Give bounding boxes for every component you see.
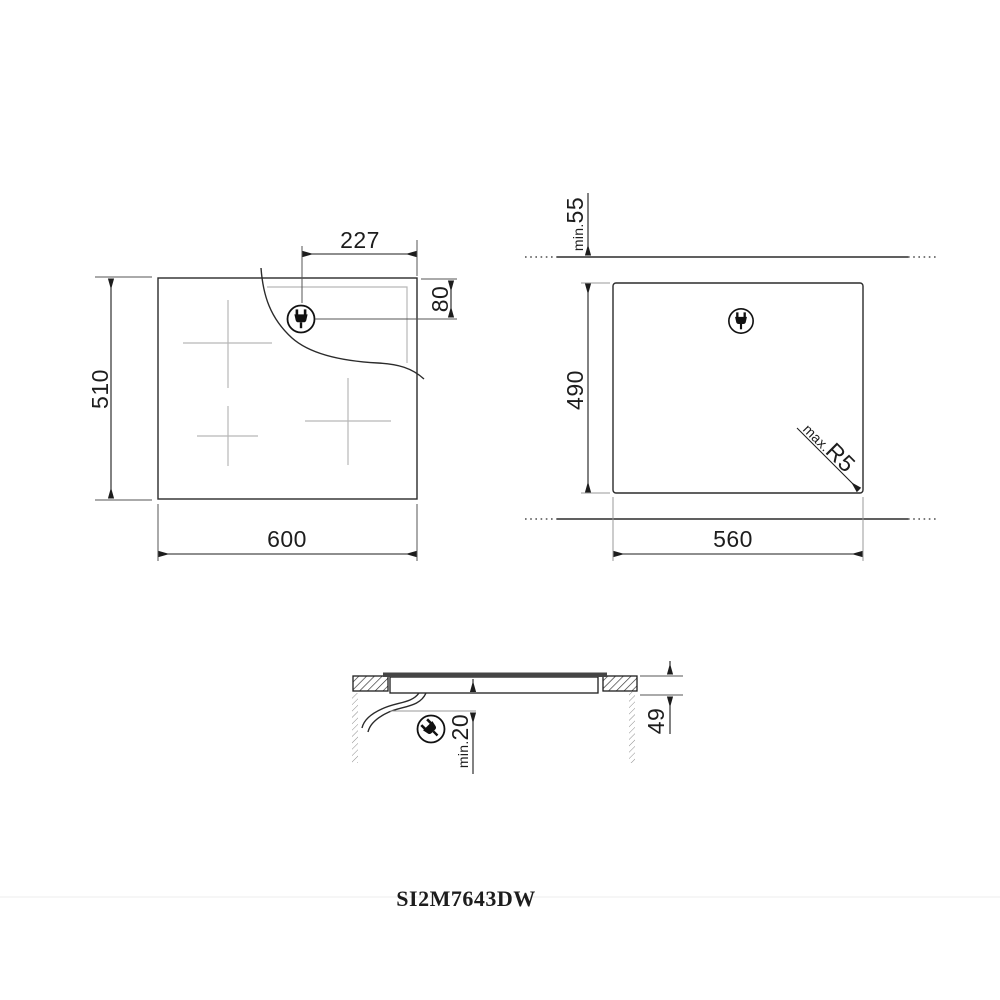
installation-drawing-page: 510 600 227 80 min.55 xyxy=(0,0,1000,1000)
worktop-section xyxy=(353,676,388,691)
section-bottom-clearance-label: min.20 xyxy=(447,714,473,768)
top-view-height-label: 510 xyxy=(87,369,113,409)
hob-glass-top xyxy=(383,673,607,678)
hob-body-section xyxy=(390,677,598,693)
hob-outline xyxy=(158,278,417,499)
power-plug-icon xyxy=(729,309,753,333)
cabinet-panel-section xyxy=(352,693,358,763)
top-view: 510 600 227 80 xyxy=(87,227,457,561)
cutout-rear-clearance-label: min.55 xyxy=(562,197,588,251)
section-view: min.20 49 xyxy=(352,661,683,774)
break-curve xyxy=(261,268,424,379)
section-recess-depth-label: 49 xyxy=(643,708,669,735)
installation-drawing: 510 600 227 80 min.55 xyxy=(0,0,1000,1000)
top-view-width-label: 600 xyxy=(267,526,307,552)
top-view-plug-y-label: 80 xyxy=(427,286,453,313)
power-plug-icon xyxy=(412,710,450,748)
cutout-height-label: 490 xyxy=(562,370,588,410)
cabinet-panel-section xyxy=(629,692,635,763)
cutout-corner-radius-label: max.R5 xyxy=(799,415,861,477)
power-plug-icon xyxy=(288,306,315,333)
worktop-section xyxy=(603,676,637,691)
top-view-plug-x-label: 227 xyxy=(340,227,380,253)
cutout-width-label: 560 xyxy=(713,526,753,552)
cutout-view: min.55 490 max.R5 560 xyxy=(525,193,938,561)
cooking-zone-crosses xyxy=(183,300,391,466)
model-number-label: SI2M7643DW xyxy=(396,886,535,911)
